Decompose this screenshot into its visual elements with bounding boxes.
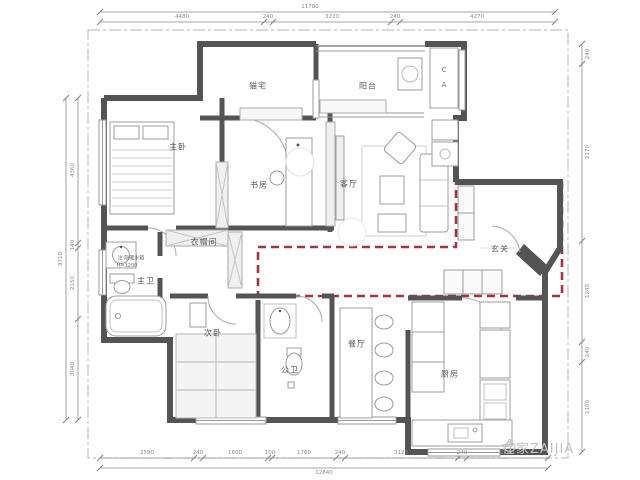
dim-left-seg: 2150: [70, 276, 76, 290]
bed-master: [110, 122, 174, 214]
balcony-items: [398, 58, 422, 90]
room-label-walk-in-closet: 衣帽间: [191, 237, 218, 248]
dim-left-total: 9710: [58, 252, 64, 266]
hidden-tank-note-line1: 注·隐藏水箱: [118, 255, 145, 262]
dim-top-seg: 4480: [175, 14, 189, 20]
study-desk: [270, 138, 314, 226]
room-label-public-bath: 公卫: [281, 365, 299, 376]
dim-right-seg: 240: [585, 347, 591, 358]
room-label-second-bedroom: 次卧: [204, 328, 222, 339]
entry-cabinets: [444, 186, 516, 294]
room-label-master-bedroom: 主卧: [169, 142, 187, 153]
dim-right-seg: 2170: [585, 145, 591, 159]
room-label-dining-room: 餐厅: [348, 339, 366, 350]
dim-left-seg: 4360: [70, 163, 76, 177]
room-label-living-room: 客厅: [340, 179, 358, 190]
floorplan-canvas: 主卧 猫宅 阳台 书房 客厅 玄关 衣帽间 主卫 次卧 公卫 餐厅 厨房 注·隐…: [0, 0, 640, 480]
dim-top-seg: 240: [390, 14, 401, 20]
closet-cabinets: [166, 100, 386, 288]
hidden-tank-note-line2: H=1200: [117, 263, 138, 269]
dim-top-total: 11780: [301, 4, 319, 10]
room-label-master-bath: 主卫: [137, 276, 155, 287]
dim-bottom-total: 12840: [315, 470, 333, 476]
dim-bottom-seg: 2590: [140, 450, 154, 456]
dim-bottom-seg: 1800: [228, 450, 242, 456]
room-label-balcony: 阳台: [359, 81, 377, 92]
dim-bottom-seg: 240: [457, 450, 468, 456]
ac-letter-a: A: [442, 81, 447, 89]
dim-right-seg: 1100: [585, 400, 591, 414]
dim-bottom-seg: 240: [335, 450, 346, 456]
dim-top-seg: 4270: [470, 14, 484, 20]
kitchen-furniture: [412, 302, 512, 446]
dim-bottom-seg: 3120: [394, 450, 408, 456]
dim-bottom-seg: 240: [193, 450, 204, 456]
dim-right-seg: 1240: [585, 284, 591, 298]
dim-left-seg: 140: [70, 240, 76, 251]
dim-top-seg: 240: [263, 14, 274, 20]
room-label-entry: 玄关: [491, 244, 509, 255]
ac-letter-c: C: [442, 66, 447, 74]
dining-furniture: [340, 308, 393, 418]
dim-bottom-seg: 100: [265, 450, 276, 456]
second-bedroom-furniture: [176, 303, 256, 418]
dim-bottom-seg: 1760: [297, 450, 311, 456]
watermark: 在家ZAIJIA: [502, 438, 574, 457]
floorplan-drawing: [0, 0, 640, 480]
dim-right-seg: 240: [585, 49, 591, 60]
dim-top-seg: 3220: [325, 14, 339, 20]
zaijia-logo-icon: [502, 438, 520, 456]
dim-left-seg: 3040: [70, 362, 76, 376]
room-label-study: 书房: [250, 180, 268, 191]
room-label-cat-room: 猫宅: [249, 81, 267, 92]
room-label-kitchen: 厨房: [441, 369, 459, 380]
